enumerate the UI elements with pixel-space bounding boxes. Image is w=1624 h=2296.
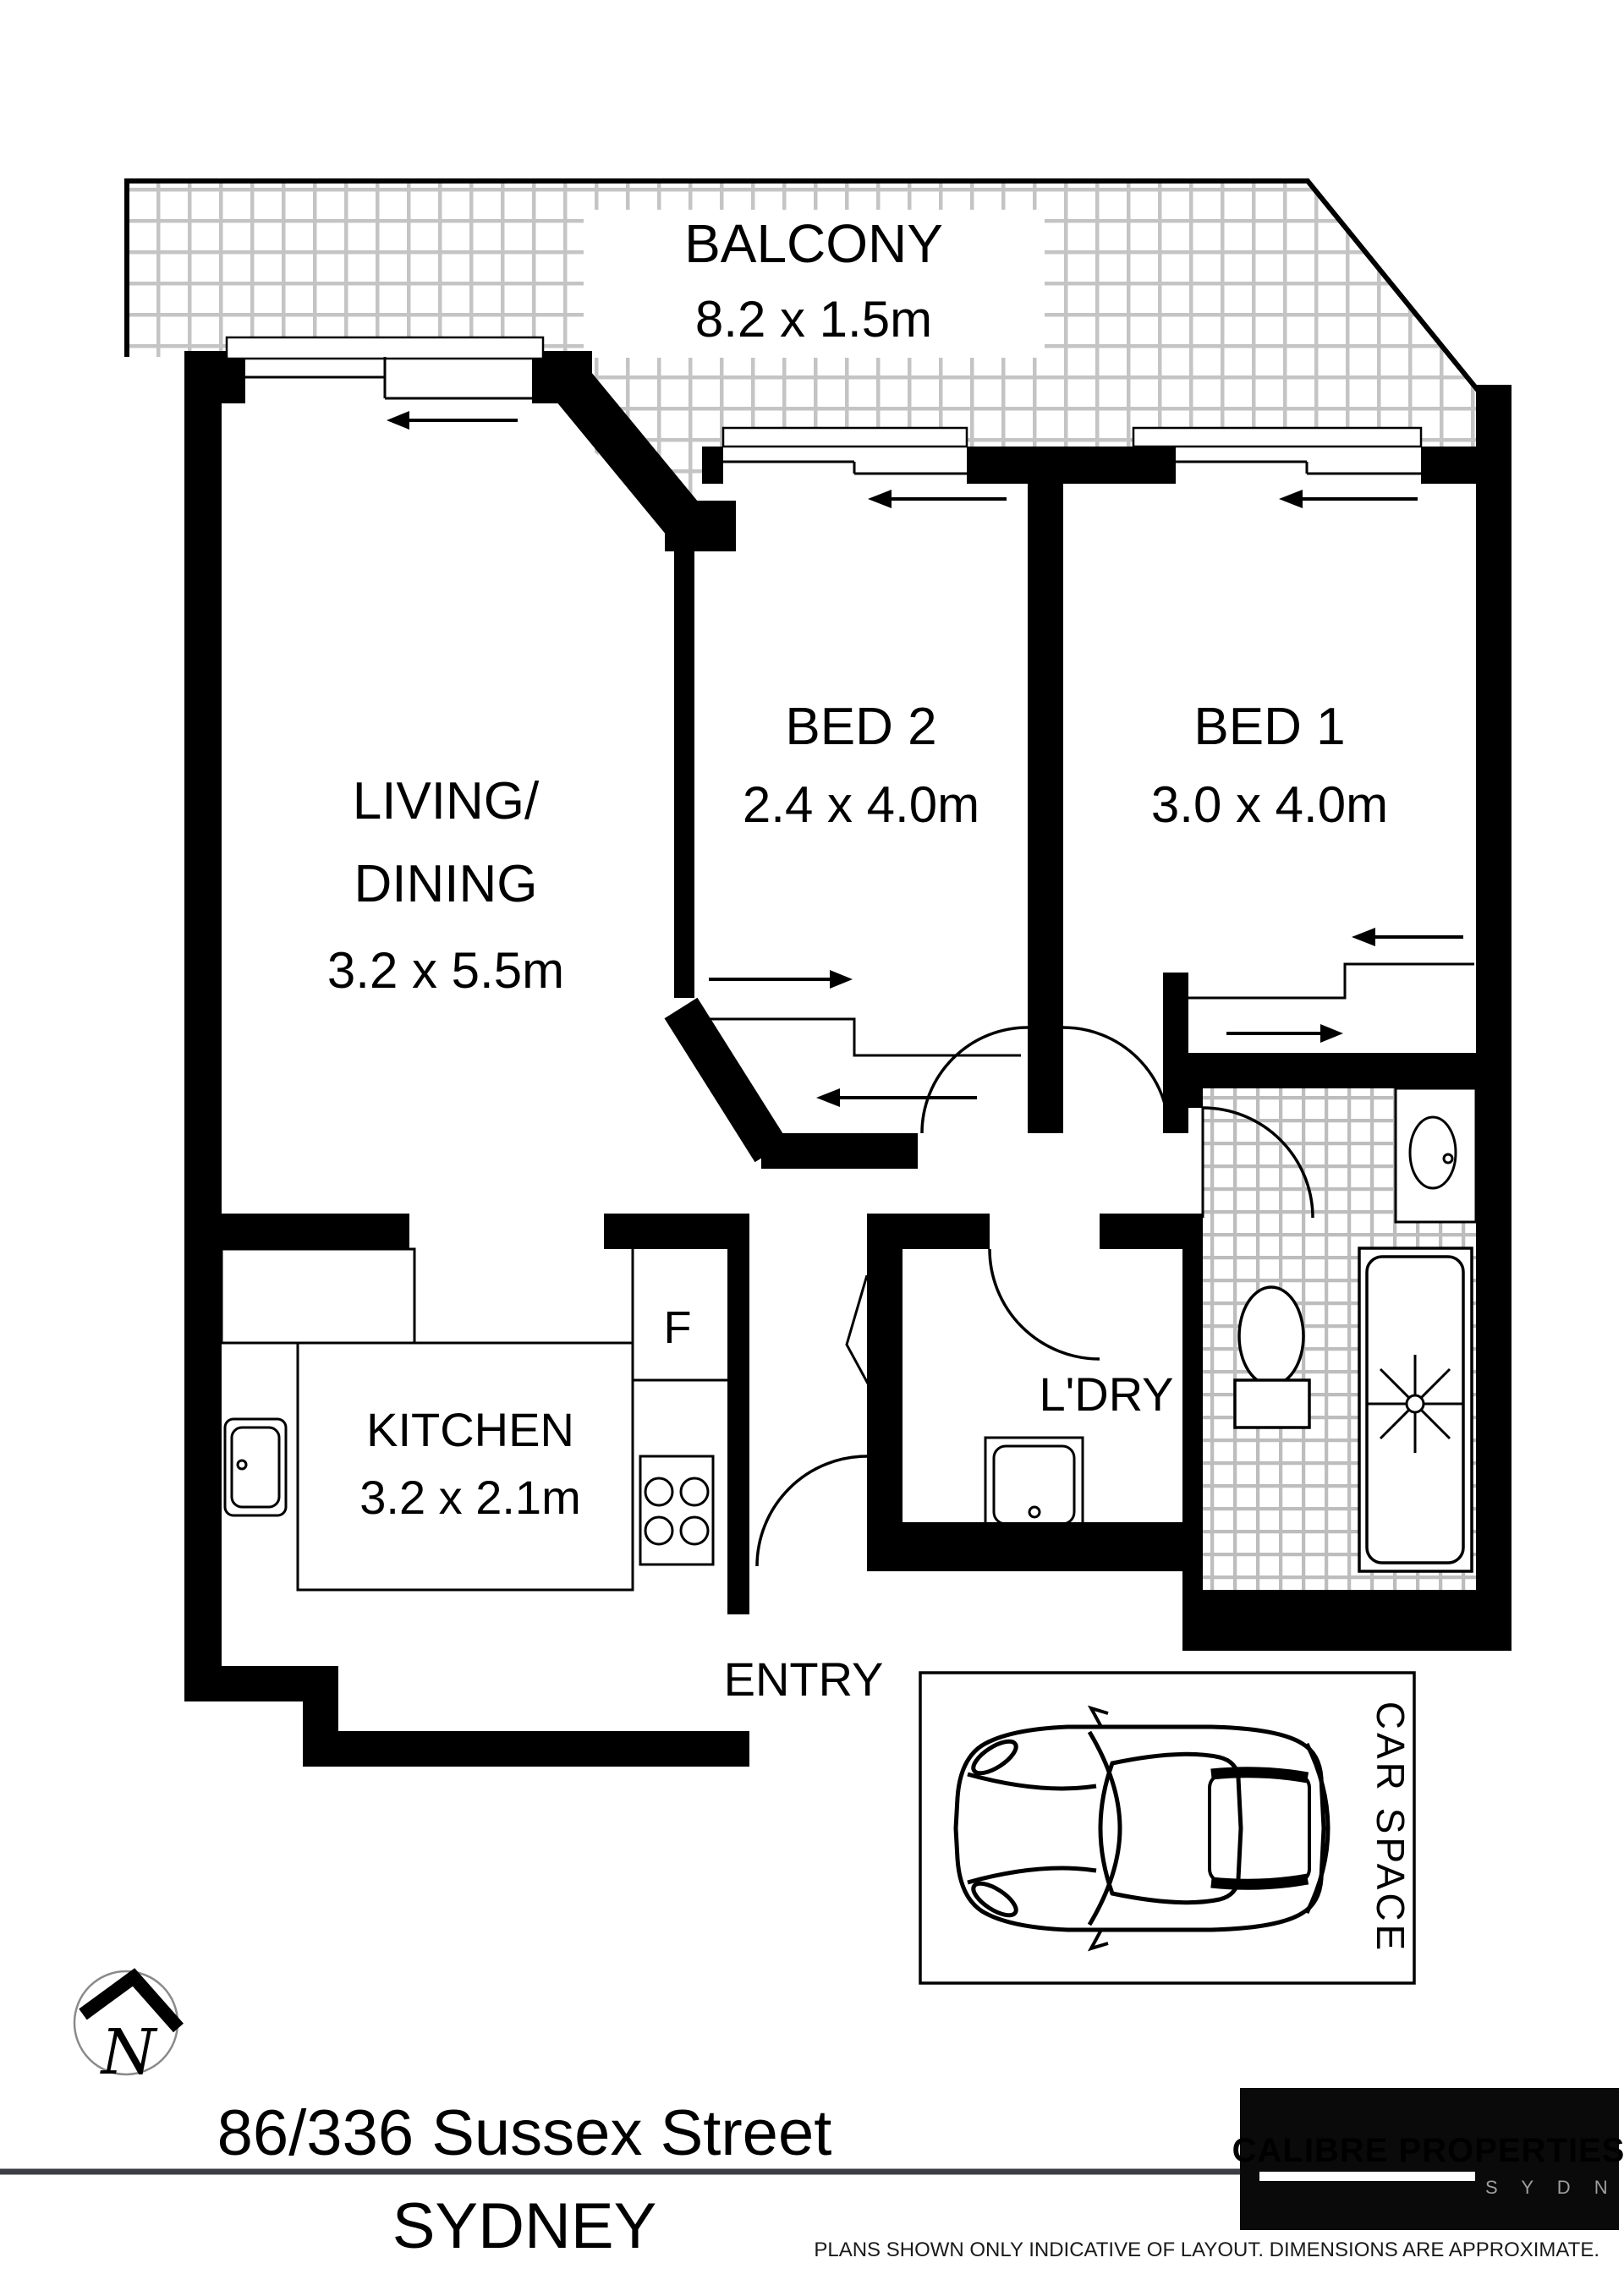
bathtub-icon [1359, 1248, 1472, 1571]
vanity [1396, 1088, 1476, 1222]
bed2-dims: 2.4 x 4.0m [743, 776, 979, 833]
toilet-icon [1235, 1287, 1309, 1427]
bed2-window-frame [723, 428, 967, 447]
living-slider-arrow-icon [387, 411, 518, 430]
bed2-label: BED 2 [785, 698, 936, 756]
living-window-frame2 [385, 377, 532, 398]
bed2-robe-arrow-left-icon [816, 1088, 977, 1107]
floorplan-page: BALCONY 8.2 x 1.5m [0, 0, 1624, 2296]
logo-underline [1259, 2172, 1475, 2181]
kitchen-sink-icon [225, 1419, 286, 1515]
logo-city-text: S Y D N E Y [1485, 2177, 1624, 2198]
balcony-label: BALCONY [684, 213, 943, 274]
kitchen-counter-main [298, 1343, 633, 1590]
logo-brand-text: CALIBRE PROPERTIES [1232, 2132, 1624, 2169]
footer: 86/336 Sussex Street SYDNEY CALIBRE PROP… [0, 2088, 1624, 2262]
kitchen-label: KITCHEN [366, 1403, 574, 1456]
entry-label: ENTRY [724, 1652, 884, 1706]
laundry-area: L'DRY [985, 1249, 1174, 1532]
bed1-robe-arrow-left-icon [1352, 928, 1463, 946]
living-label-2: DINING [354, 855, 538, 913]
laundry-door-arc [990, 1249, 1100, 1359]
shower-rose-icon [1366, 1355, 1464, 1453]
floorplan-svg: BALCONY 8.2 x 1.5m [0, 0, 1624, 2296]
basin-icon [1396, 1088, 1476, 1222]
bed1-robe-track [1188, 964, 1474, 998]
room-labels: LIVING/ DINING 3.2 x 5.5m BED 2 2.4 x 4.… [327, 698, 1388, 999]
bed2-robe-track [697, 1019, 1021, 1055]
car-space-label: CAR SPACE [1369, 1701, 1413, 1954]
living-label-1: LIVING/ [353, 772, 540, 830]
kitchen-area: KITCHEN 3.2 x 2.1m F [222, 1249, 727, 1590]
living-dims: 3.2 x 5.5m [327, 942, 564, 999]
kitchen-dims: 3.2 x 2.1m [359, 1471, 580, 1524]
car-space-box [920, 1673, 1414, 1983]
living-window-frame [227, 337, 543, 359]
north-arrow-icon: N [74, 1971, 178, 2089]
bed1-dims: 3.0 x 4.0m [1151, 776, 1388, 833]
bed1-label: BED 1 [1193, 698, 1345, 756]
bed2-window-arrow-icon [868, 490, 1007, 508]
kitchen-counter-top [222, 1249, 414, 1343]
fridge-label: F [664, 1302, 692, 1353]
disclaimer-text: PLANS SHOWN ONLY INDICATIVE OF LAYOUT. D… [814, 2238, 1599, 2261]
stove-cooktop-icon [640, 1456, 713, 1564]
address-line2: SYDNEY [392, 2190, 657, 2262]
laundry-label: L'DRY [1039, 1367, 1173, 1421]
laundry-tub-icon [985, 1438, 1083, 1532]
bed1-door-arc [1063, 1027, 1169, 1133]
bed1-window-frame [1133, 428, 1421, 447]
car-space: CAR SPACE [920, 1673, 1414, 1983]
address-line1: 86/336 Sussex Street [217, 2097, 832, 2169]
entry-door-arc [757, 1456, 867, 1566]
bed2-door-arc [922, 1027, 1028, 1133]
north-label: N [100, 2016, 158, 2089]
bed2-robe-arrow-right-icon [709, 970, 853, 989]
balcony-dims: 8.2 x 1.5m [695, 291, 932, 348]
bed1-robe-arrow-right-icon [1226, 1024, 1343, 1043]
agency-logo: CALIBRE PROPERTIES S Y D N E Y [1232, 2088, 1624, 2230]
bed1-window-arrow-icon [1279, 490, 1418, 508]
